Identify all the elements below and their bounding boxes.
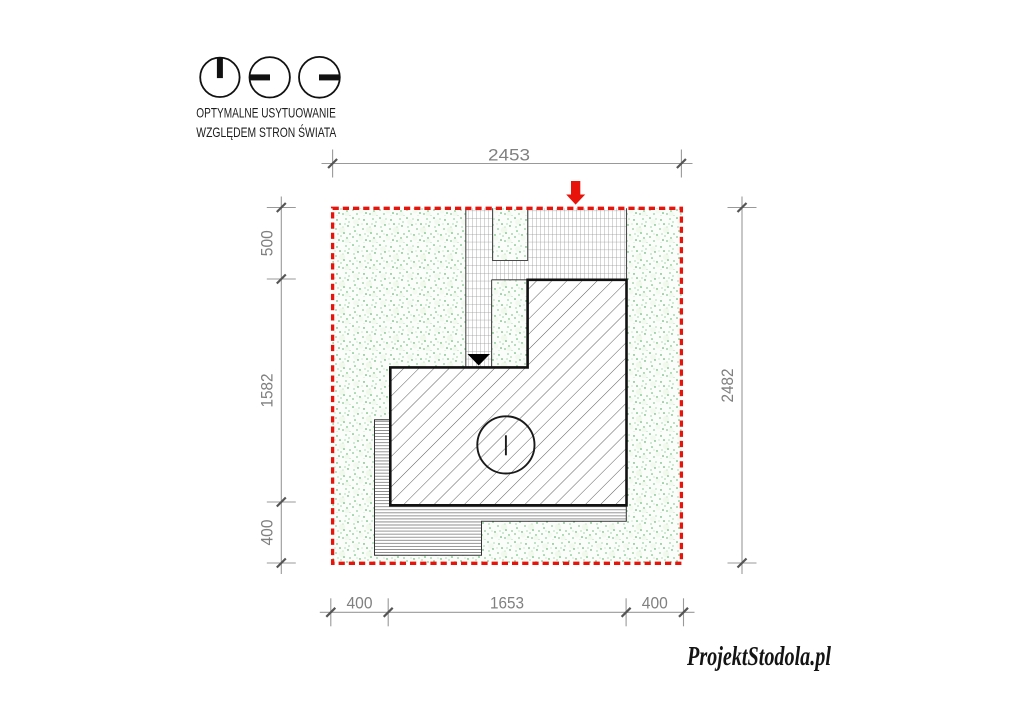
svg-text:2482: 2482: [719, 369, 737, 403]
svg-text:400: 400: [642, 595, 668, 613]
svg-text:1582: 1582: [259, 374, 277, 408]
svg-text:400: 400: [347, 595, 373, 613]
svg-text:400: 400: [259, 520, 277, 546]
svg-text:OPTYMALNE USYTUOWANIE: OPTYMALNE USYTUOWANIE: [196, 105, 335, 121]
svg-text:500: 500: [259, 230, 277, 256]
svg-text:ProjektStodola.pl: ProjektStodola.pl: [686, 641, 831, 671]
svg-text:WZGLĘDEM STRON ŚWIATA: WZGLĘDEM STRON ŚWIATA: [196, 123, 336, 140]
svg-text:1653: 1653: [490, 595, 524, 613]
svg-text:2453: 2453: [488, 147, 530, 165]
